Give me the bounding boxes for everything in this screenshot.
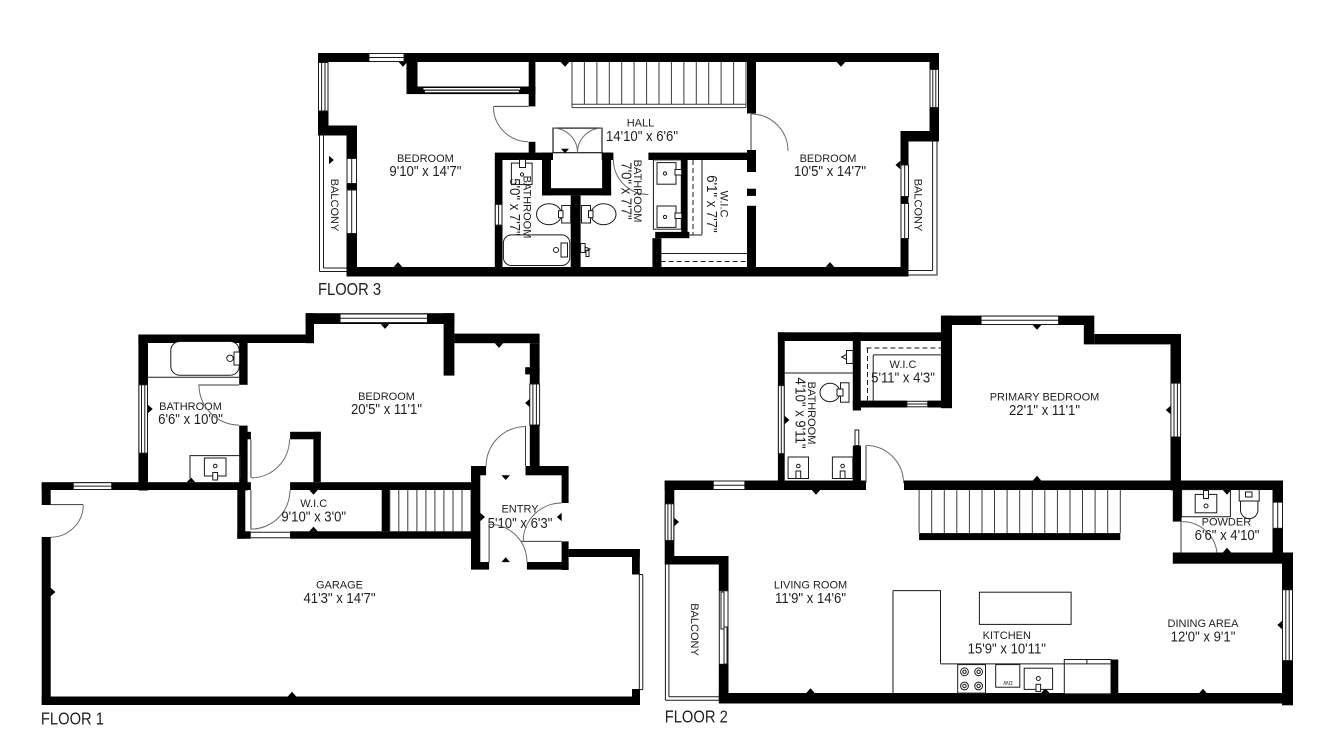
svg-text:6'6" x 10'0": 6'6" x 10'0" — [158, 411, 223, 428]
svg-text:6'6" x 4'10": 6'6" x 4'10" — [1195, 526, 1260, 543]
svg-text:7'0" x 7'7": 7'0" x 7'7" — [618, 162, 635, 219]
svg-text:41'3" x 14'7": 41'3" x 14'7" — [303, 590, 375, 607]
svg-text:4'10" x 9'11": 4'10" x 9'11" — [792, 377, 809, 448]
svg-text:22'1" x 11'1": 22'1" x 11'1" — [1009, 401, 1080, 418]
svg-text:9'10" x 14'7": 9'10" x 14'7" — [389, 163, 461, 180]
svg-text:14'10" x 6'6": 14'10" x 6'6" — [606, 128, 678, 145]
svg-text:15'9" x 10'11": 15'9" x 10'11" — [968, 640, 1046, 657]
svg-text:FLOOR 2: FLOOR 2 — [665, 707, 728, 727]
svg-text:20'5" x 11'1": 20'5" x 11'1" — [351, 401, 422, 418]
svg-text:DW: DW — [1003, 679, 1013, 685]
svg-text:BALCONY: BALCONY — [688, 603, 700, 656]
svg-text:10'5" x 14'7": 10'5" x 14'7" — [794, 163, 866, 180]
svg-text:9'10" x 3'0": 9'10" x 3'0" — [281, 508, 346, 525]
svg-text:11'9" x 14'6": 11'9" x 14'6" — [775, 589, 846, 606]
svg-text:5'11" x 4'3": 5'11" x 4'3" — [871, 369, 935, 386]
svg-text:6'1" x 7'7": 6'1" x 7'7" — [704, 175, 721, 232]
svg-text:5'10" x 6'3": 5'10" x 6'3" — [488, 514, 553, 531]
svg-text:FLOOR 1: FLOOR 1 — [41, 709, 104, 729]
svg-text:12'0" x 9'1": 12'0" x 9'1" — [1171, 628, 1236, 645]
svg-text:FLOOR 3: FLOOR 3 — [318, 280, 381, 300]
svg-text:BALCONY: BALCONY — [328, 179, 340, 232]
svg-text:BALCONY: BALCONY — [912, 179, 924, 232]
svg-text:5'0" x 7'7": 5'0" x 7'7" — [507, 178, 524, 235]
